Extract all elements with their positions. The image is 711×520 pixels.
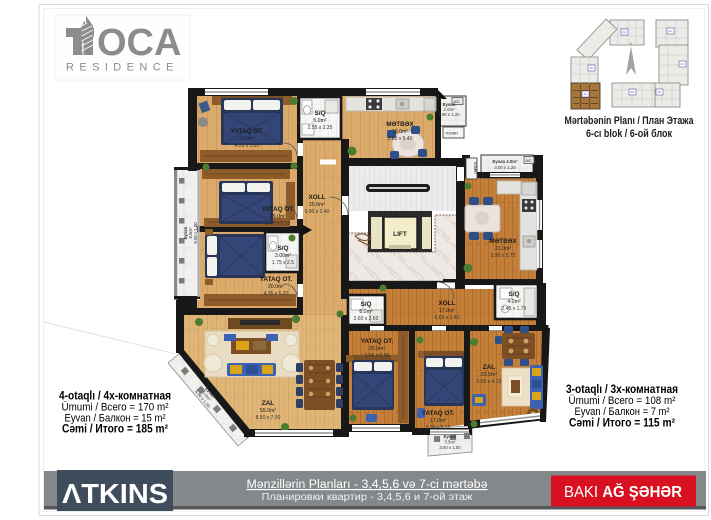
- svg-text:AC: AC: [623, 30, 627, 34]
- svg-text:YATAQ OT.: YATAQ OT.: [260, 276, 293, 283]
- svg-text:Eyvan: Eyvan: [444, 434, 457, 439]
- svg-text:19.0m²: 19.0m²: [270, 214, 286, 220]
- svg-text:OCA: OCA: [97, 22, 181, 64]
- svg-text:4.0m²: 4.0m²: [507, 299, 521, 305]
- svg-text:AC: AC: [590, 66, 594, 70]
- svg-text:20.0m²: 20.0m²: [369, 346, 385, 352]
- svg-text:ΛTKINS: ΛTKINS: [62, 478, 168, 509]
- svg-text:6.0m²: 6.0m²: [359, 309, 373, 315]
- svg-text:8.00 x 1.00: 8.00 x 1.00: [193, 222, 198, 244]
- svg-text:S/Q: S/Q: [508, 291, 519, 298]
- svg-text:S/Q: S/Q: [360, 301, 371, 308]
- svg-text:9.90 x 2.40: 9.90 x 2.40: [305, 209, 330, 215]
- svg-text:A/C: A/C: [526, 159, 532, 163]
- svg-text:1.75 x 2.5: 1.75 x 2.5: [272, 260, 294, 266]
- svg-text:MƏTBƏX: MƏTBƏX: [489, 238, 517, 245]
- svg-text:23.0m²: 23.0m²: [481, 372, 497, 378]
- svg-text:5.0m²: 5.0m²: [313, 118, 327, 124]
- svg-text:6-cı blok / 6-ой блок: 6-cı blok / 6-ой блок: [586, 128, 672, 140]
- svg-text:S/Q: S/Q: [314, 110, 325, 117]
- svg-text:MƏTBƏX: MƏTBƏX: [386, 121, 414, 128]
- svg-text:2.45 x 1.75: 2.45 x 1.75: [502, 306, 527, 312]
- svg-text:55.0m²: 55.0m²: [260, 408, 276, 414]
- svg-text:S/Q: S/Q: [277, 245, 288, 252]
- svg-text:21.0m²: 21.0m²: [495, 246, 511, 252]
- svg-text:3.00 x 1.20: 3.00 x 1.20: [494, 165, 516, 170]
- svg-text:LIFT: LIFT: [393, 231, 407, 238]
- svg-text:20.0m²: 20.0m²: [268, 284, 284, 290]
- svg-text:3.00m²: 3.00m²: [275, 253, 291, 259]
- svg-text:YATAQ OT.: YATAQ OT.: [262, 206, 295, 213]
- svg-text:3.90 x 5.75: 3.90 x 5.75: [491, 253, 516, 259]
- svg-text:KOMBI: KOMBI: [473, 162, 477, 174]
- svg-text:RESIDENCE: RESIDENCE: [66, 62, 179, 74]
- svg-text:ZAL: ZAL: [262, 400, 275, 407]
- svg-text:YATAQ OT.: YATAQ OT.: [231, 128, 264, 135]
- svg-text:XOLL: XOLL: [308, 194, 325, 201]
- svg-text:BAKI AĞ ŞƏHƏR: BAKI AĞ ŞƏHƏR: [564, 483, 682, 501]
- svg-text:2.60 x 2.60: 2.60 x 2.60: [354, 316, 379, 322]
- svg-text:1.90 x 1.20: 1.90 x 1.20: [438, 112, 460, 117]
- svg-text:5.55 x 4.10: 5.55 x 4.10: [477, 379, 502, 385]
- svg-text:Cəmi / Итого = 115 m²: Cəmi / Итого = 115 m²: [569, 418, 675, 430]
- svg-text:AC: AC: [584, 92, 588, 96]
- svg-text:17.0m²: 17.0m²: [439, 308, 455, 314]
- svg-text:AC: AC: [631, 90, 635, 94]
- svg-text:2.55 x 2.35: 2.55 x 2.35: [308, 125, 333, 131]
- svg-text:17.0m²: 17.0m²: [430, 418, 446, 424]
- svg-text:AC: AC: [681, 62, 685, 66]
- svg-text:ZAL: ZAL: [483, 364, 496, 371]
- svg-text:3.50 x 1.00: 3.50 x 1.00: [439, 445, 461, 450]
- svg-text:KOMBI: KOMBI: [446, 132, 458, 136]
- svg-text:AC: AC: [658, 90, 662, 94]
- svg-text:Eyvan 4.0m²: Eyvan 4.0m²: [492, 159, 518, 164]
- svg-text:Mənzillərin Planları - 3,4,5,6: Mənzillərin Planları - 3,4,5,6 və 7-ci m…: [247, 479, 488, 491]
- svg-text:N: N: [630, 41, 633, 46]
- svg-text:3.45 x 5.20: 3.45 x 5.20: [266, 221, 291, 227]
- svg-text:25.0m²: 25.0m²: [309, 202, 325, 208]
- svg-text:19.0m²: 19.0m²: [392, 129, 408, 135]
- svg-text:4.20 x 5.85: 4.20 x 5.85: [235, 143, 260, 149]
- svg-text:3.80 x 5.40: 3.80 x 5.40: [388, 136, 413, 142]
- svg-text:3.5m²: 3.5m²: [445, 440, 457, 445]
- svg-text:Cəmi / Итого = 185 m²: Cəmi / Итого = 185 m²: [62, 424, 168, 436]
- svg-text:3.65 x 5.30: 3.65 x 5.30: [365, 353, 390, 359]
- svg-text:4.35 x 5.20: 4.35 x 5.20: [264, 291, 289, 297]
- svg-text:8.50 x 7.00: 8.50 x 7.00: [256, 415, 281, 421]
- svg-text:Mərtəbənin Planı / План Этажа: Mərtəbənin Planı / План Этажа: [565, 115, 695, 127]
- svg-text:Планировки квартир - 3,4,5,6 и: Планировки квартир - 3,4,5,6 и 7-ой этаж: [262, 492, 473, 503]
- svg-text:Eyvan / Балкон = 7 m²: Eyvan / Балкон = 7 m²: [575, 406, 670, 418]
- svg-text:AC: AC: [669, 29, 673, 33]
- svg-text:YATAQ OT.: YATAQ OT.: [422, 410, 455, 417]
- svg-text:XOLL: XOLL: [438, 300, 455, 307]
- svg-text:6.65 x 2.40: 6.65 x 2.40: [435, 315, 460, 321]
- svg-text:YATAQ OT.: YATAQ OT.: [361, 338, 394, 345]
- svg-text:24.0m²: 24.0m²: [239, 136, 255, 142]
- svg-text:3.30 x 5.10: 3.30 x 5.10: [426, 425, 451, 431]
